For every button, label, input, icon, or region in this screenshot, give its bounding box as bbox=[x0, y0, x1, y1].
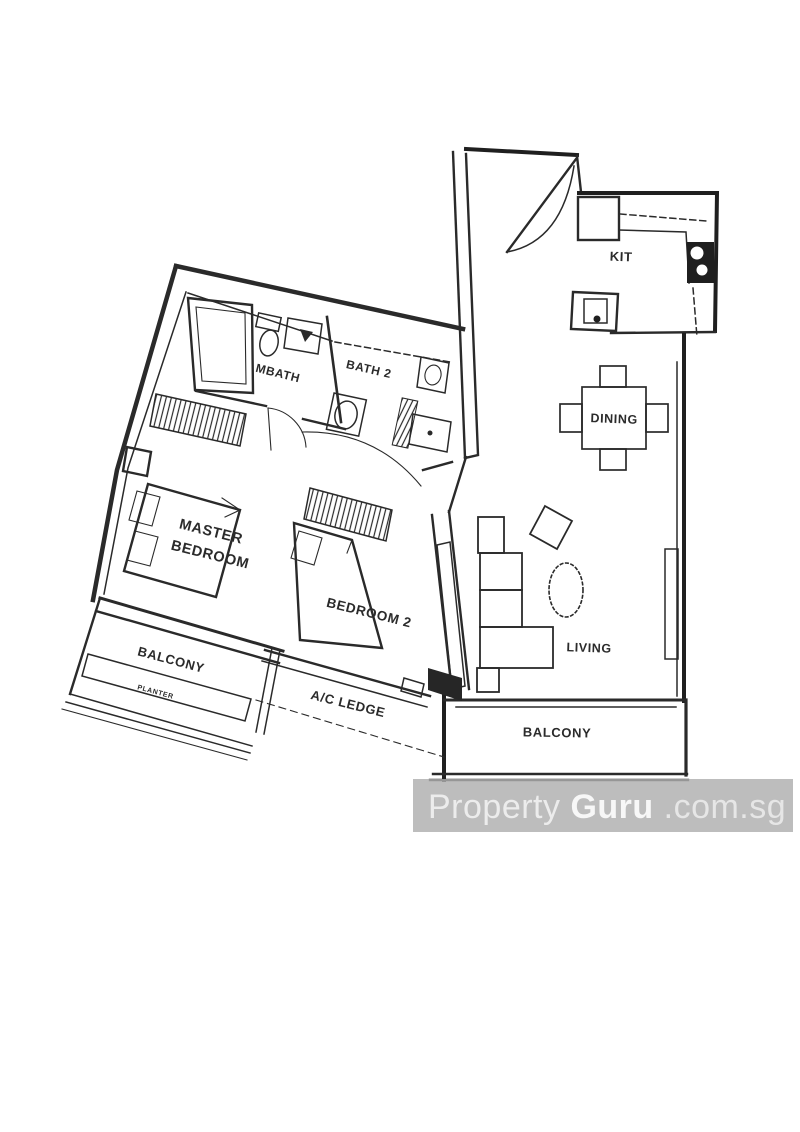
left-wall-column bbox=[123, 447, 151, 476]
walls-left-wing bbox=[62, 266, 463, 760]
sofa-armrest bbox=[478, 517, 504, 553]
hall-wall-c bbox=[423, 462, 452, 470]
master-balcony-band-b bbox=[96, 611, 279, 663]
entry-door-leaf bbox=[507, 159, 576, 252]
sofa-corner-seat bbox=[480, 627, 553, 668]
hob-burner-2 bbox=[697, 265, 708, 276]
bedroom2-wardrobe bbox=[304, 488, 392, 541]
label-living: LIVING bbox=[566, 640, 612, 656]
kitchen-fixtures bbox=[571, 197, 714, 337]
bedroom2-band-a bbox=[265, 650, 430, 696]
label-mbath: MBATH bbox=[254, 361, 301, 386]
planter-edge-c bbox=[62, 709, 247, 760]
hall-wall-a bbox=[196, 391, 266, 406]
bath2-basin bbox=[423, 364, 443, 387]
coffee-table bbox=[549, 563, 583, 617]
sofa-end bbox=[477, 668, 499, 692]
dining-chair-left bbox=[560, 404, 582, 432]
planter-edge-a bbox=[70, 694, 252, 746]
master-wardrobe bbox=[150, 394, 246, 446]
label-kitchen: KIT bbox=[610, 249, 633, 265]
watermark: Property Guru .com.sg bbox=[413, 779, 793, 832]
wing-top-wall bbox=[176, 266, 463, 329]
living-furniture bbox=[477, 506, 583, 692]
mbath-toilet bbox=[257, 328, 280, 357]
sofa bbox=[477, 517, 553, 692]
bath2-hatch-strip bbox=[392, 398, 418, 448]
fridge bbox=[578, 197, 619, 240]
entry-top-wall bbox=[466, 149, 577, 155]
living-wing-wall-b bbox=[449, 511, 469, 689]
foyer-to-wing-wall bbox=[449, 457, 466, 512]
bath2-toilet-box bbox=[326, 393, 366, 436]
bedroom2-bed bbox=[294, 523, 382, 648]
label-planter: PLANTER bbox=[136, 684, 174, 700]
entry-jamb bbox=[577, 156, 581, 192]
watermark-property: Property bbox=[428, 788, 561, 826]
watermark-text: Property Guru .com.sg bbox=[428, 788, 786, 826]
right-window-sill bbox=[665, 549, 678, 659]
foyer-wall-inner bbox=[465, 154, 478, 458]
dining-chair-bottom bbox=[600, 449, 626, 470]
bath2-sink bbox=[417, 357, 449, 393]
master-balcony-band-a bbox=[100, 598, 283, 651]
mbath-door-leaf bbox=[268, 408, 271, 450]
floor-plan: KIT DINING LIVING MASTER BEDROOM BEDROOM… bbox=[0, 0, 800, 1132]
master-pillow-2 bbox=[127, 531, 158, 566]
armchair bbox=[530, 506, 572, 549]
sofa-cushion-2 bbox=[480, 590, 522, 627]
kitchen-bottom-wall bbox=[611, 332, 715, 333]
mbath-sink-mark bbox=[300, 329, 313, 342]
dining-chair-top bbox=[600, 366, 626, 387]
mbath-door-arc bbox=[268, 408, 306, 447]
watermark-suffix: .com.sg bbox=[664, 788, 787, 826]
watermark-guru: Guru bbox=[570, 788, 653, 826]
label-bath2: BATH 2 bbox=[345, 357, 393, 381]
dining-chair-right bbox=[646, 404, 668, 432]
wing-left-wall bbox=[93, 266, 176, 600]
shower-drain bbox=[428, 431, 433, 436]
overhead-cabinet-dashed bbox=[620, 214, 706, 221]
label-balcony-bottom: BALCONY bbox=[523, 724, 592, 740]
sink-faucet bbox=[594, 316, 601, 323]
balcony-right-edge-a bbox=[256, 648, 272, 732]
kitchen-sink-box bbox=[571, 292, 618, 331]
hall-wall-b bbox=[303, 419, 345, 429]
bathtub-rim bbox=[196, 307, 246, 384]
counter-dashed bbox=[693, 288, 697, 337]
sofa-cushion-1 bbox=[480, 553, 522, 590]
room-labels: KIT DINING LIVING MASTER BEDROOM BEDROOM… bbox=[136, 249, 638, 741]
label-dining: DINING bbox=[590, 411, 638, 427]
planter-edge-b bbox=[66, 702, 250, 753]
hob-burner-1 bbox=[691, 247, 704, 260]
foyer-wall-outer bbox=[453, 152, 465, 458]
floorplan-page: KIT DINING LIVING MASTER BEDROOM BEDROOM… bbox=[0, 0, 800, 1132]
